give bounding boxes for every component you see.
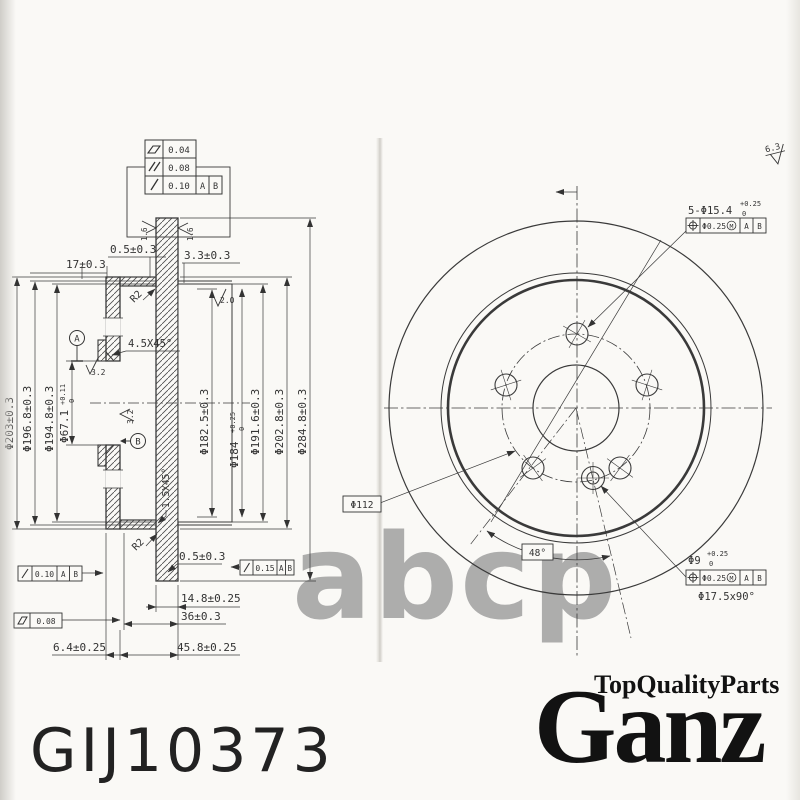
section-view <box>90 218 250 581</box>
scan-shadow-left <box>0 0 16 800</box>
svg-text:+0.25: +0.25 <box>707 550 728 558</box>
chamfer-15: 1.5X45° <box>161 468 172 508</box>
svg-text:M: M <box>730 575 734 583</box>
hat-web-lower <box>120 520 156 529</box>
svg-text:Φ112: Φ112 <box>351 500 374 511</box>
svg-text:0.10: 0.10 <box>35 570 54 579</box>
svg-text:Φ184: Φ184 <box>228 441 241 468</box>
fcf-position-bolt-holes: Φ0.25 M A B <box>686 218 766 233</box>
svg-text:A: A <box>74 335 80 345</box>
roughness-16-right: 1.6 <box>178 223 195 241</box>
svg-text:Φ0.25: Φ0.25 <box>702 574 726 583</box>
tol-runout-value: 0.10 <box>168 182 190 192</box>
fcf-position-screw-hole: Φ0.25 M A B <box>686 570 766 585</box>
tol-datum-b: B <box>213 182 218 192</box>
hat-web-upper <box>120 277 156 286</box>
tol-flatness-value: 0.04 <box>168 146 190 156</box>
pilot-lip-lower <box>98 445 106 466</box>
roughness-32-face: 3.2 <box>120 409 135 424</box>
brand-name: Ganz <box>534 686 784 769</box>
svg-text:B: B <box>135 438 140 448</box>
fcf-runout-face: 0.15 A B <box>231 560 294 575</box>
svg-text:0: 0 <box>709 560 713 568</box>
screw-hole-callout: Φ9 +0.25 0 Φ0.25 M A B Φ17.5x90° <box>601 486 766 603</box>
dim-d196: Φ196.8±0.3 <box>21 386 34 452</box>
svg-text:6.3: 6.3 <box>764 142 781 155</box>
roughness-63: 6.3 <box>763 141 787 166</box>
part-number: GIJ10373 <box>30 716 335 786</box>
dim-d191: Φ191.6±0.3 <box>249 389 262 455</box>
svg-text:B: B <box>288 564 293 573</box>
angle-label: 48° <box>522 544 553 560</box>
dim-d67: Φ67.1 +0.11 0 <box>58 384 76 443</box>
front-view <box>384 186 772 658</box>
svg-text:1.6: 1.6 <box>186 227 195 241</box>
bolt-holes-callout: 5-Φ15.4 +0.25 0 Φ0.25 M A B <box>588 200 766 327</box>
svg-text:Φ67.1: Φ67.1 <box>58 410 71 443</box>
dim-458: 45.8±0.25 <box>177 641 237 654</box>
fcf-runout-hub: 0.10 A B <box>18 566 103 581</box>
dim-05-bottom: 0.5±0.3 <box>179 550 225 563</box>
pilot-lip-upper <box>98 340 106 361</box>
roughness-16-left: 1.6 <box>140 221 156 241</box>
datum-b: B <box>120 434 146 449</box>
svg-text:Φ9: Φ9 <box>688 555 701 567</box>
svg-text:A: A <box>279 564 284 573</box>
svg-text:+0.25: +0.25 <box>740 200 761 208</box>
dim-d284: Φ284.8±0.3 <box>296 389 309 455</box>
svg-text:+0.11: +0.11 <box>59 384 67 405</box>
svg-text:Φ0.25: Φ0.25 <box>702 222 726 231</box>
svg-text:A: A <box>61 570 66 579</box>
scan-shadow-right <box>786 0 800 800</box>
svg-text:0.08: 0.08 <box>36 617 55 626</box>
fcf-flatness: 0.08 <box>14 613 120 628</box>
dim-148: 14.8±0.25 <box>181 592 241 605</box>
dim-d194: Φ194.8±0.3 <box>43 386 56 452</box>
dim-64: 6.4±0.25 <box>53 641 106 654</box>
svg-text:3.2: 3.2 <box>126 409 135 424</box>
datum-a: A <box>70 331 85 362</box>
radius-r2-bottom: R2 <box>130 537 146 553</box>
svg-text:1.6: 1.6 <box>140 227 149 241</box>
svg-text:5-Φ15.4: 5-Φ15.4 <box>688 205 732 217</box>
tol-datum-a: A <box>200 182 205 192</box>
dim-05-top: 0.5±0.3 <box>110 243 156 256</box>
dim-d202: Φ202.8±0.3 <box>273 389 286 455</box>
svg-text:B: B <box>757 222 762 231</box>
tol-parallelism-value: 0.08 <box>168 164 190 174</box>
svg-text:2.0: 2.0 <box>220 296 235 305</box>
bolt-holes <box>486 312 667 490</box>
dim-33-top: 3.3±0.3 <box>184 249 230 262</box>
svg-text:M: M <box>730 223 734 231</box>
svg-text:B: B <box>757 574 762 583</box>
svg-text:0.15: 0.15 <box>255 564 274 573</box>
radius-r2-top: R2 <box>128 289 144 305</box>
svg-text:0: 0 <box>238 427 246 431</box>
svg-text:B: B <box>73 570 78 579</box>
svg-text:A: A <box>744 222 749 231</box>
dim-17: 17±0.3 <box>66 258 106 271</box>
countersink-spec: Φ17.5x90° <box>698 591 755 603</box>
svg-text:A: A <box>744 574 749 583</box>
dim-36: 36±0.3 <box>181 610 221 623</box>
svg-text:3.2: 3.2 <box>91 368 106 377</box>
svg-text:+0.25: +0.25 <box>229 412 237 433</box>
drum-ring-section <box>156 218 178 581</box>
svg-text:0: 0 <box>742 210 746 218</box>
chamfer-45: 4.5X45° <box>128 338 172 350</box>
brand-logo: TopQualityParts Ganz <box>534 670 784 769</box>
dim-d182: Φ182.5±0.3 <box>198 389 211 455</box>
svg-text:0: 0 <box>68 399 76 403</box>
svg-text:48°: 48° <box>529 548 546 559</box>
